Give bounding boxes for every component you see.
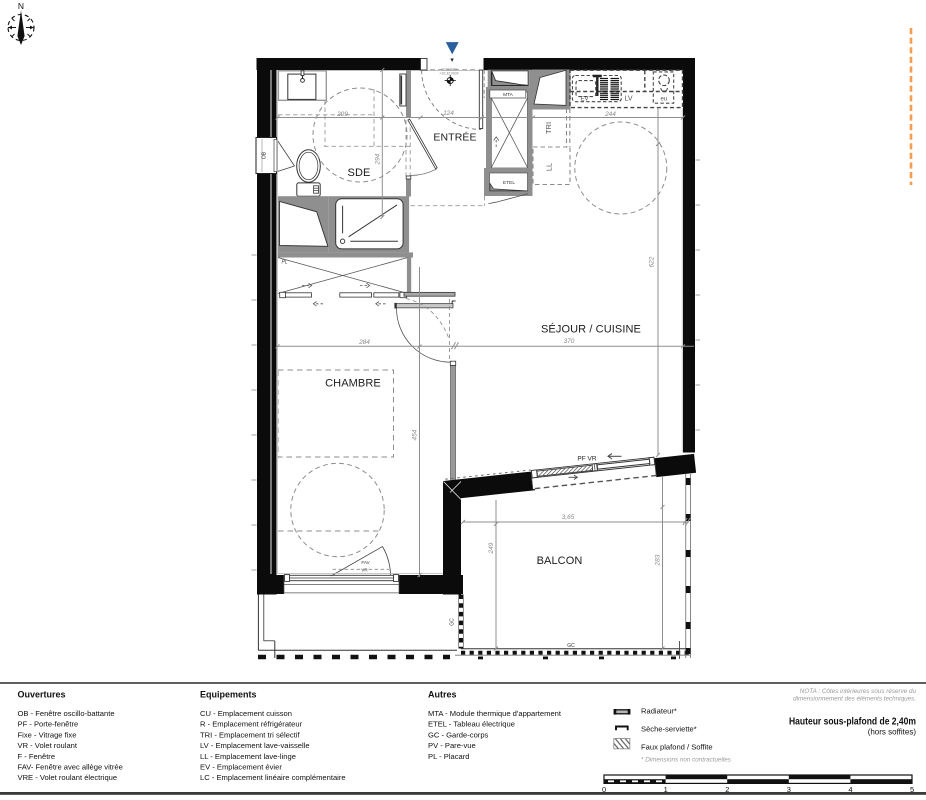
svg-text:VR: VR	[361, 568, 368, 573]
svg-text:eu: eu	[661, 97, 668, 103]
svg-text:MTA: MTA	[503, 92, 514, 98]
svg-text:4: 4	[848, 785, 852, 794]
svg-text:dimensionnement des éléments t: dimensionnement des éléments techniques.	[793, 696, 916, 703]
svg-text:3: 3	[787, 785, 791, 794]
svg-text:TRI: TRI	[544, 122, 553, 134]
svg-text:PF - Porte-fenêtre: PF - Porte-fenêtre	[18, 720, 79, 729]
svg-text:NOTA : Côtes intérieures sous: NOTA : Côtes intérieures sous réserve du	[800, 688, 917, 695]
svg-text:244: 244	[604, 111, 616, 118]
svg-text:TRI - Emplacement tri sélectif: TRI - Emplacement tri sélectif	[200, 730, 300, 739]
svg-text:LL - Emplacement lave-linge: LL - Emplacement lave-linge	[200, 752, 296, 761]
svg-text:BALCON: BALCON	[537, 555, 583, 567]
svg-text:PL - Placard: PL - Placard	[428, 752, 470, 761]
svg-text:ETEL - Tableau électrique: ETEL - Tableau électrique	[428, 720, 515, 729]
svg-text:Sèche-serviette*: Sèche-serviette*	[641, 724, 697, 733]
svg-text:* Dimensions non contractuelle: * Dimensions non contractuelles	[641, 757, 732, 764]
svg-text:124: 124	[443, 110, 454, 117]
svg-text:ETEL: ETEL	[503, 180, 515, 186]
svg-text:209: 209	[336, 111, 348, 118]
svg-text:ENTRÉE: ENTRÉE	[433, 131, 476, 144]
svg-text:LV: LV	[625, 96, 633, 103]
svg-text:283: 283	[655, 554, 662, 566]
svg-text:Equipements: Equipements	[200, 690, 257, 700]
svg-text:454: 454	[412, 429, 419, 440]
svg-text:CU - Emplacement cuisson: CU - Emplacement cuisson	[200, 709, 292, 718]
svg-text:+10,32 NGF: +10,32 NGF	[439, 71, 459, 75]
svg-text:R - Emplacement réfrigérateur: R - Emplacement réfrigérateur	[200, 720, 303, 729]
svg-text:2: 2	[725, 785, 729, 794]
svg-text:GC: GC	[567, 643, 575, 649]
svg-text:SÉJOUR / CUISINE: SÉJOUR / CUISINE	[541, 323, 641, 336]
svg-text:VRE - Volet roulant électrique: VRE - Volet roulant électrique	[18, 773, 118, 782]
svg-text:EV - Emplacement évier: EV - Emplacement évier	[200, 763, 282, 772]
svg-text:1: 1	[664, 785, 668, 794]
svg-text:PL: PL	[282, 260, 288, 266]
svg-text:OB: OB	[262, 151, 268, 159]
svg-text:LV - Emplacement lave-vaissell: LV - Emplacement lave-vaisselle	[200, 741, 310, 750]
svg-text:249: 249	[488, 542, 495, 554]
svg-text:Fixe - Vitrage fixe: Fixe - Vitrage fixe	[18, 730, 77, 739]
svg-text:GC: GC	[450, 618, 456, 626]
svg-text:Ouvertures: Ouvertures	[18, 690, 66, 700]
svg-text:5: 5	[910, 785, 914, 794]
svg-text:LC - Emplacement linéaire comp: LC - Emplacement linéaire complémentaire	[200, 773, 346, 782]
svg-text:294: 294	[375, 153, 382, 165]
svg-text:622: 622	[649, 256, 656, 267]
svg-text:GC - Garde-corps: GC - Garde-corps	[428, 730, 489, 739]
svg-text:Autres: Autres	[428, 690, 457, 700]
svg-text:Radiateur*: Radiateur*	[641, 707, 677, 716]
svg-text:370: 370	[564, 338, 575, 345]
svg-text:SDE: SDE	[348, 167, 371, 179]
svg-text:F - Fenêtre: F - Fenêtre	[18, 752, 56, 761]
svg-text:284: 284	[358, 339, 370, 346]
svg-text:LL: LL	[545, 163, 554, 171]
svg-text:EV: EV	[581, 97, 589, 103]
svg-text:Hauteur sous-plafond de 2,40m: Hauteur sous-plafond de 2,40m	[789, 717, 916, 728]
svg-text:3,65: 3,65	[562, 514, 575, 521]
svg-text:PV - Pare-vue: PV - Pare-vue	[428, 741, 476, 750]
svg-text:OB - Fenêtre oscillo-battante: OB - Fenêtre oscillo-battante	[18, 709, 115, 718]
svg-text:(hors soffites): (hors soffites)	[868, 728, 917, 737]
svg-text:MTA - Module thermique d'appar: MTA - Module thermique d'appartement	[428, 709, 562, 718]
svg-text:PF VR: PF VR	[577, 456, 596, 463]
svg-text:CHAMBRE: CHAMBRE	[325, 378, 381, 390]
svg-text:N: N	[18, 1, 24, 11]
svg-text:Faux plafond / Soffite: Faux plafond / Soffite	[641, 742, 713, 751]
svg-text:FAV- Fenêtre avec allège vitré: FAV- Fenêtre avec allège vitrée	[18, 763, 123, 772]
svg-text:FAV: FAV	[361, 560, 370, 565]
svg-text:0: 0	[602, 785, 606, 794]
svg-text:VR - Volet roulant: VR - Volet roulant	[18, 741, 78, 750]
